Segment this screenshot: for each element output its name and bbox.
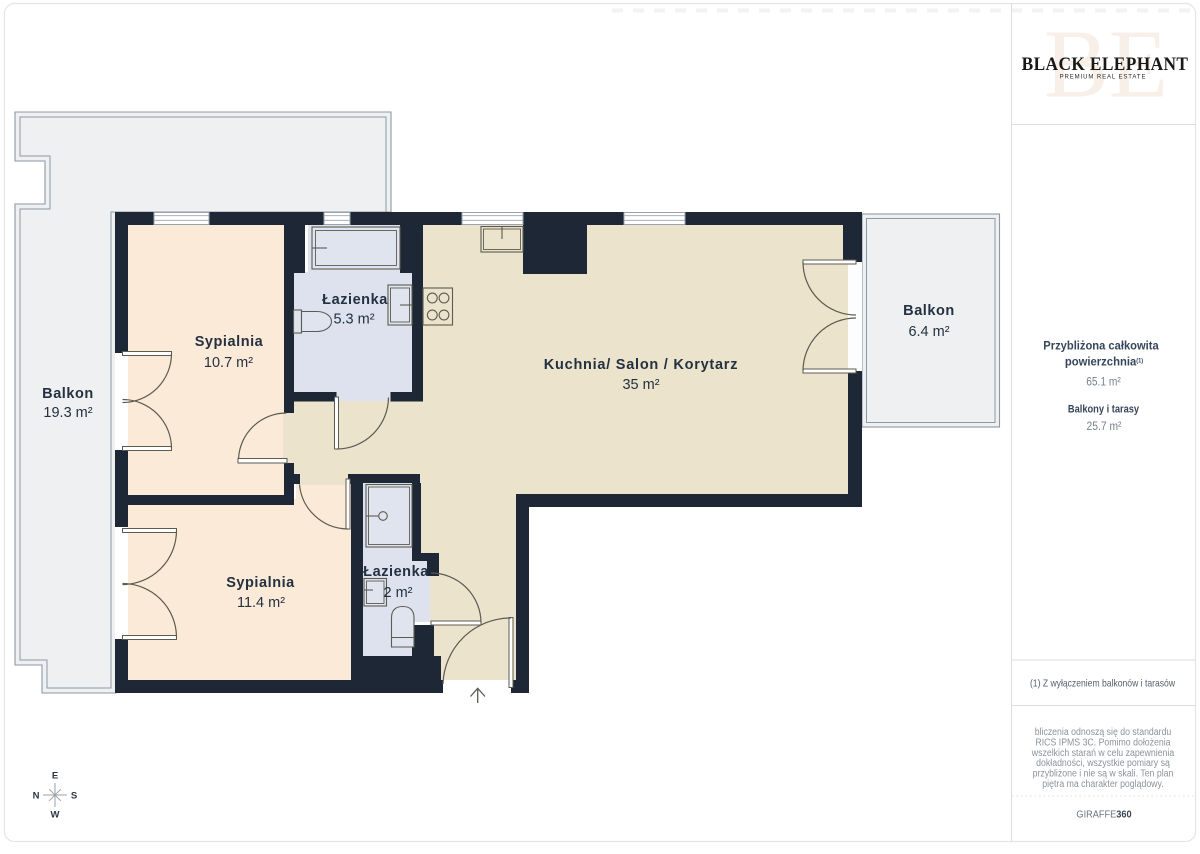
svg-text:piętra ma charakter poglądowy.: piętra ma charakter poglądowy. <box>1042 778 1163 790</box>
svg-text:10.7 m²: 10.7 m² <box>204 355 253 371</box>
svg-text:N: N <box>33 791 40 802</box>
svg-text:2 m²: 2 m² <box>384 585 413 601</box>
svg-text:Przybliżona całkowita: Przybliżona całkowita <box>1043 340 1159 352</box>
svg-text:65.1 m²: 65.1 m² <box>1086 376 1121 389</box>
svg-text:Kuchnia/ Salon / Korytarz: Kuchnia/ Salon / Korytarz <box>544 357 738 373</box>
svg-text:35 m²: 35 m² <box>622 377 659 393</box>
svg-text:Sypialnia: Sypialnia <box>226 575 295 591</box>
svg-text:Balkon: Balkon <box>42 386 94 402</box>
svg-text:(1) Z wyłączeniem balkonów i t: (1) Z wyłączeniem balkonów i tarasów <box>1030 678 1175 689</box>
svg-text:19.3 m²: 19.3 m² <box>43 405 92 421</box>
svg-text:Sypialnia: Sypialnia <box>195 334 264 350</box>
svg-text:Łazienka: Łazienka <box>363 564 429 580</box>
svg-text:PREMIUM REAL ESTATE: PREMIUM REAL ESTATE <box>1060 73 1147 80</box>
svg-text:25.7 m²: 25.7 m² <box>1087 420 1122 433</box>
svg-text:5.3 m²: 5.3 m² <box>333 312 374 328</box>
svg-text:Balkony i tarasy: Balkony i tarasy <box>1068 404 1140 416</box>
svg-text:Balkon: Balkon <box>903 303 955 319</box>
svg-text:6.4 m²: 6.4 m² <box>908 324 949 340</box>
svg-text:E: E <box>52 771 58 782</box>
svg-text:S: S <box>71 791 77 802</box>
svg-text:Łazienka: Łazienka <box>322 292 388 308</box>
svg-text:powierzchnia(1): powierzchnia(1) <box>1065 355 1143 368</box>
svg-text:GIRAFFE360: GIRAFFE360 <box>1076 809 1131 820</box>
svg-text:W: W <box>51 810 60 821</box>
svg-text:11.4 m²: 11.4 m² <box>237 595 285 611</box>
svg-text:BLACK ELEPHANT: BLACK ELEPHANT <box>1022 53 1189 74</box>
